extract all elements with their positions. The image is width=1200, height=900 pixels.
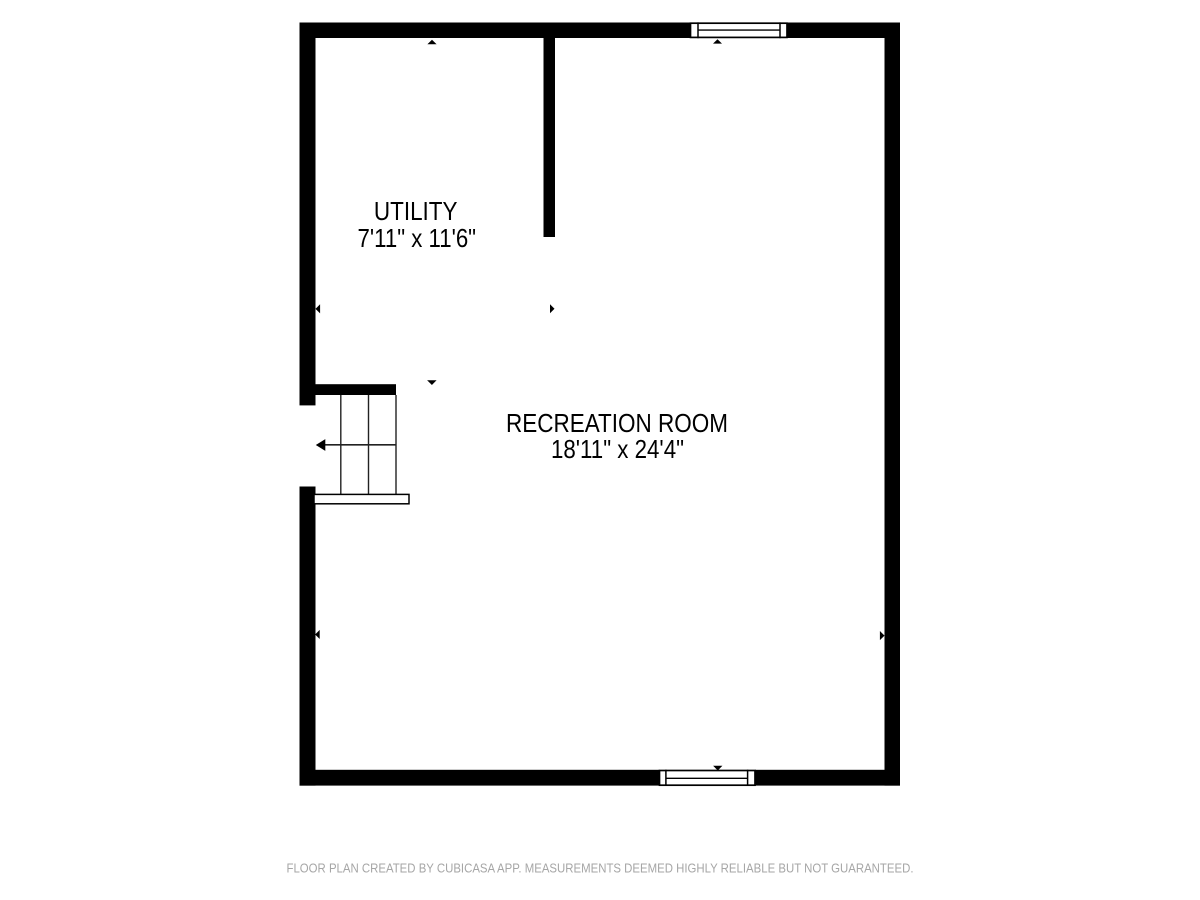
svg-text:7'11" x 11'6": 7'11" x 11'6" bbox=[358, 223, 477, 253]
svg-text:18'11" x 24'4": 18'11" x 24'4" bbox=[551, 434, 684, 464]
svg-text:UTILITY: UTILITY bbox=[374, 196, 458, 226]
svg-text:FLOOR PLAN CREATED BY CUBICASA: FLOOR PLAN CREATED BY CUBICASA APP. MEAS… bbox=[287, 860, 914, 875]
